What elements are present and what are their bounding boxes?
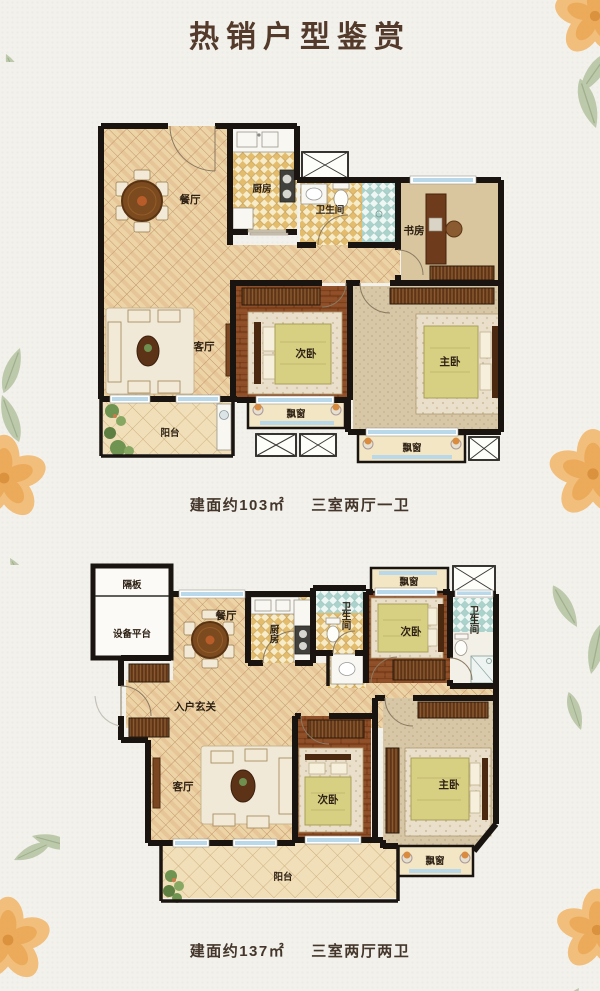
floorplan-137: 隔板 设备平台 餐厅 厨房 卫生间 飘窗 次卧 卫生间 入户玄关 客厅 次卧 主… — [83, 558, 513, 923]
watercolor-flower-bottom-left — [0, 818, 60, 991]
wardrobe — [390, 288, 494, 304]
watercolor-flower-bottom-right — [545, 878, 600, 991]
wardrobe — [242, 288, 320, 305]
wardrobe — [393, 660, 445, 680]
wardrobe — [129, 664, 169, 682]
room-label-balcony: 阳台 — [273, 871, 293, 883]
watercolor-flower-left — [0, 330, 50, 565]
plan2-layout: 三室两厅两卫 — [311, 943, 410, 960]
room-label-entry: 入户玄关 — [174, 700, 216, 713]
room-label-baywindow1: 飘窗 — [285, 408, 306, 420]
toilet-icon — [455, 634, 468, 656]
ac-platform-icon — [453, 566, 495, 592]
room-label-bedroom2: 次卧 — [296, 347, 317, 360]
fridge-icon — [233, 208, 253, 229]
sink-icon — [331, 654, 363, 684]
room-label-balcony: 阳台 — [160, 427, 180, 439]
room-label-bathroom: 卫生间 — [316, 204, 345, 216]
plan1-layout: 三室两厅一卫 — [311, 497, 410, 514]
room-label-master: 主卧 — [440, 355, 461, 368]
page-title: 热销户型鉴赏 — [0, 12, 600, 56]
stove-icon — [295, 626, 311, 654]
floorplan-103: 餐厅 厨房 卫生间 书房 客厅 次卧 主卧 阳台 飘窗 飘窗 — [90, 110, 510, 470]
room-label-kitchen: 厨房 — [268, 625, 280, 645]
room-label-kitchen: 厨房 — [252, 183, 271, 195]
room-label-living: 客厅 — [193, 340, 215, 353]
bed — [299, 748, 363, 832]
office-chair — [446, 221, 462, 237]
room-label-baywindow-bottom: 飘窗 — [424, 855, 445, 867]
bed — [405, 748, 491, 836]
room-label-dining: 餐厅 — [215, 609, 237, 622]
plan1-area: 建面约103㎡ — [190, 497, 286, 514]
wardrobe — [129, 718, 169, 737]
room-label-bathroom2: 卫生间 — [468, 606, 480, 635]
room-label-bedroom2-top: 次卧 — [401, 625, 422, 638]
bookshelf — [430, 266, 494, 280]
room-label-bedroom2-bottom: 次卧 — [318, 793, 339, 806]
sofa-set — [201, 746, 297, 828]
plan1-caption: 建面约103㎡三室两厅一卫 — [0, 494, 600, 515]
room-label-baywindow2: 飘窗 — [401, 442, 422, 454]
room-label-living: 客厅 — [172, 780, 194, 793]
room-label-study: 书房 — [404, 224, 425, 237]
wardrobe — [418, 702, 488, 718]
sink-icon — [301, 184, 327, 204]
room-label-master: 主卧 — [439, 778, 460, 791]
room-label-dining: 餐厅 — [179, 193, 201, 206]
washing-machine-icon — [217, 404, 231, 450]
wardrobe — [386, 748, 399, 833]
kitchen-counter — [232, 128, 295, 152]
watercolor-flower-right — [543, 412, 600, 742]
room-label-baywindow-top: 飘窗 — [398, 576, 419, 588]
stove-icon — [280, 170, 295, 202]
sofa-set — [106, 308, 194, 394]
room-label-equipment: 设备平台 — [113, 628, 152, 640]
wardrobe — [308, 720, 364, 738]
poster: 热销户型鉴赏 — [0, 0, 600, 991]
room-label-partition: 隔板 — [122, 579, 142, 591]
room-label-bathroom1: 卫生间 — [340, 602, 352, 631]
plan2-caption: 建面约137㎡三室两厅两卫 — [0, 940, 600, 961]
shower-icon — [471, 656, 494, 683]
entry-steps — [95, 696, 119, 726]
tv-cabinet — [153, 758, 160, 808]
plan2-area: 建面约137㎡ — [190, 943, 286, 960]
